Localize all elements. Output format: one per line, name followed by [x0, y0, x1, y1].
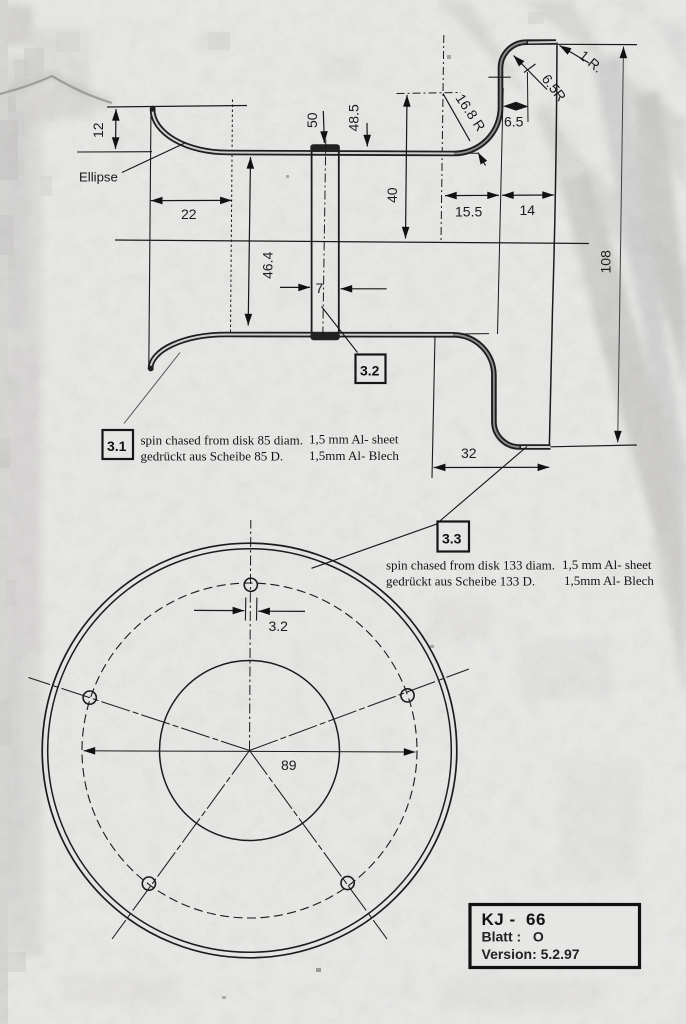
svg-text:108: 108: [598, 250, 614, 274]
svg-text:3.3: 3.3: [442, 531, 462, 547]
svg-text:32: 32: [461, 445, 477, 461]
svg-text:50: 50: [304, 112, 320, 128]
svg-text:Version: 5.2.97: Version: 5.2.97: [482, 946, 580, 962]
svg-text:12: 12: [90, 122, 106, 138]
svg-text:40: 40: [384, 187, 400, 203]
svg-text:14: 14: [520, 202, 536, 218]
svg-text:Blatt : O: Blatt : O: [482, 929, 544, 945]
svg-text:22: 22: [181, 206, 197, 222]
svg-text:46.4: 46.4: [260, 252, 276, 279]
svg-text:6.5: 6.5: [504, 114, 524, 130]
svg-text:89: 89: [281, 757, 297, 773]
svg-text:48.5: 48.5: [346, 104, 362, 131]
svg-text:3.2: 3.2: [269, 618, 289, 634]
svg-text:1,5 mm Al- sheet: 1,5 mm Al- sheet: [309, 432, 399, 447]
svg-text:spin chased from disk 133 diam: spin chased from disk 133 diam.: [386, 558, 555, 573]
svg-text:Ellipse: Ellipse: [79, 170, 118, 185]
svg-text:3.1: 3.1: [107, 438, 127, 454]
svg-text:KJ - 66: KJ - 66: [482, 910, 546, 929]
svg-text:spin chased from disk 85 diam.: spin chased from disk 85 diam.: [141, 433, 303, 448]
svg-text:1,5 mm Al- sheet: 1,5 mm Al- sheet: [562, 557, 652, 572]
svg-text:gedrückt aus Scheibe 133 D.: gedrückt aus Scheibe 133 D.: [386, 574, 535, 589]
svg-text:gedrückt aus Scheibe 85 D.: gedrückt aus Scheibe 85 D.: [141, 449, 284, 464]
svg-text:15.5: 15.5: [455, 204, 482, 220]
svg-text:1,5mm Al- Blech: 1,5mm Al- Blech: [564, 573, 654, 588]
svg-text:7: 7: [316, 280, 324, 296]
svg-text:3.2: 3.2: [360, 363, 380, 379]
svg-text:1,5mm Al- Blech: 1,5mm Al- Blech: [309, 448, 399, 463]
